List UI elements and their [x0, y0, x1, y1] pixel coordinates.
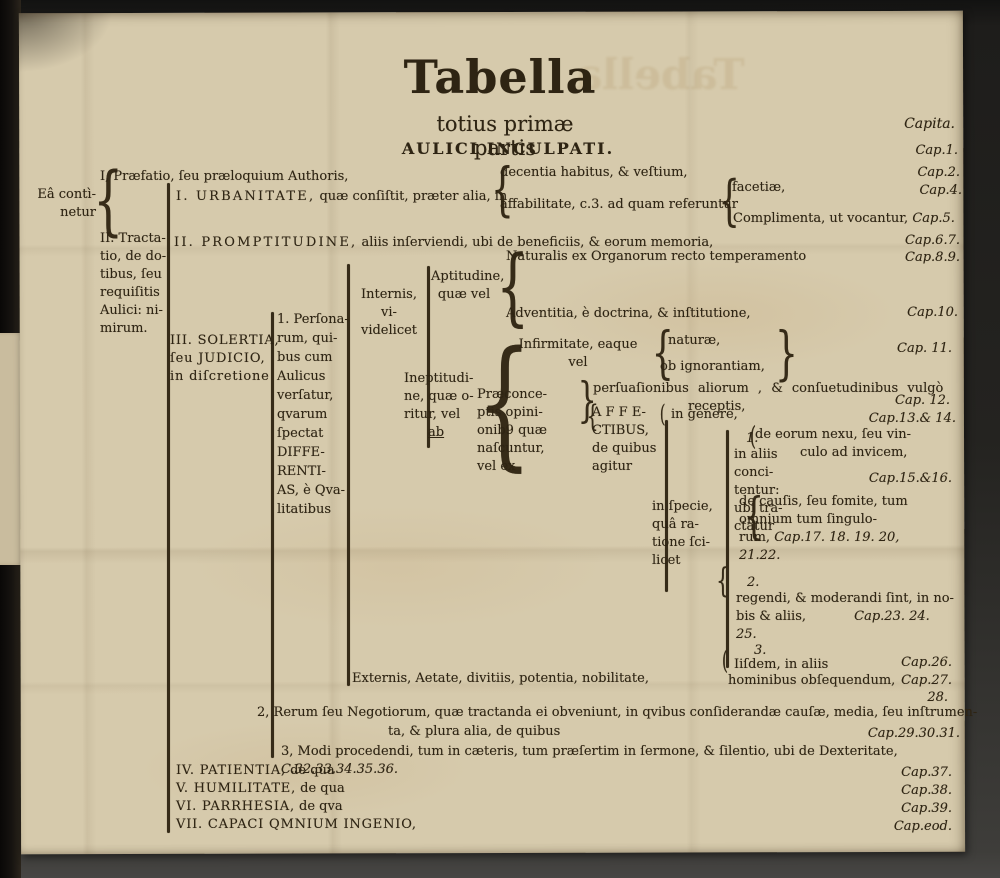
node-de-eorum-line2: culo ad invicem,: [800, 444, 907, 462]
node-tractatio: II. Tracta- tio, de do- tibus, ſeu requi…: [100, 230, 170, 338]
node-solertia: III. SOLERTIA, ſeu JUDICIO, in diſcretio…: [170, 332, 279, 386]
node-decentia: decentia habitus, & veſtium,: [500, 164, 688, 182]
cap-ref-eod: Cap.eod.: [894, 818, 952, 836]
node-adventitia: Adventitia, è doctrina, & inſtitutione,: [506, 305, 751, 323]
scanned-page: Tabella Tabella totius primæ partis AULI…: [0, 0, 1000, 878]
node-humilitate-term: V. HUMILITATE,: [176, 781, 296, 796]
cap-ref-27: Cap.27.: [901, 672, 952, 690]
node-parrhesia-term: VI. PARRHESIA,: [176, 799, 295, 814]
cap-ref-29-31: Cap.29.30.31.: [868, 725, 960, 743]
node-externis: Externis, Aetate, divitiis, potentia, no…: [352, 670, 649, 688]
node-urbanitate-rest: quæ conſiſtit, præter alia, in: [315, 189, 507, 204]
node-persuasionibus: perſuaſionibus aliorum , & conſuetudinib…: [593, 380, 943, 398]
cap-ref-8-9: Cap.8.9.: [905, 249, 960, 267]
cap-ref-38: Cap.38.: [901, 782, 952, 800]
node-in-specie: in ſpecie, quâ ra- tione ſci- licet: [652, 498, 722, 570]
node-urbanitate: I. URBANITATE, quæ conſiſtit, præter ali…: [176, 188, 507, 206]
node-humilitate: V. HUMILITATE, de qua: [176, 780, 345, 798]
node-rerum-line1: 2, Rerum ſeu Negotiorum, quæ tractanda e…: [257, 704, 977, 722]
cap-ref-5: Cap.5.: [912, 211, 955, 226]
node-aptitudine: Aptitudine, quæ vel: [431, 268, 497, 304]
node-ab: ab: [428, 424, 444, 442]
node-internis: Internis, vi- videlicet: [352, 286, 426, 340]
node-de-causis: de cauſis, ſeu fomite, tum omnium tum ſi…: [739, 493, 959, 565]
node-in-genere: in genere,: [671, 406, 738, 424]
node-naturalis: Naturalis ex Organorum recto temperament…: [506, 248, 806, 266]
showthrough-title-ghost: Tabella: [575, 50, 745, 99]
node-rerum-line2: ta, & plura alia, de quibus: [388, 723, 560, 741]
cap-ref-10: Cap.10.: [907, 304, 958, 322]
node-affectibus: A F F E- CTIBUS, de quibus agitur: [592, 404, 666, 476]
node-complimenta-text: Complimenta, ut vocantur,: [733, 211, 912, 226]
node-ea-continetur: Eâ contì- netur: [22, 186, 96, 222]
page-heading: AULICI INCULPATI.: [398, 139, 618, 158]
node-urbanitate-term: I. URBANITATE,: [176, 189, 315, 204]
node-praeconceptis: Præconce- ptis opini- onib9 quæ naſcuntu…: [477, 386, 551, 476]
node-promptitudine-term: II. PROMPTITUDINE,: [174, 235, 357, 250]
node-ineptitudine: Ineptitudi- ne, quæ o- ritur, vel: [404, 370, 474, 424]
node-modi-text: 3, Modi procedendi, tum in cæteris, tum …: [281, 744, 898, 759]
cap-ref-1: Cap.1.: [915, 142, 958, 160]
capita-column-header: Capita.: [904, 115, 955, 133]
node-patientia-rest: de qua: [286, 763, 335, 778]
brace-rule-numbered-items: [726, 430, 729, 668]
node-personarum: 1. Perſona- rum, qui- bus cum Aulicus ve…: [277, 310, 353, 519]
node-capaci-term: VII. CAPACI QMNIUM INGENIO,: [176, 817, 417, 832]
node-facetiae: facetiæ,: [732, 179, 785, 197]
node-naturae: naturæ,: [668, 332, 720, 350]
node-de-eorum-line1: de eorum nexu, ſeu vin-: [755, 426, 911, 444]
node-complimenta: Complimenta, ut vocantur, Cap.5.: [733, 210, 955, 228]
node-parrhesia: VI. PARRHESIA, de qva: [176, 798, 343, 816]
page-title: Tabella: [400, 52, 600, 102]
cap-ref-15-16: Cap.15.&16.: [869, 470, 952, 488]
node-regendi: regendi, & moderandi ſint, in no- bis & …: [736, 590, 954, 644]
cap-ref-6-7: Cap.6.7.: [905, 232, 960, 250]
node-infirmitate: Infirmitate, eaque vel: [512, 336, 644, 372]
cap-ref-4: Cap.4.: [919, 182, 962, 200]
cap-ref-26: Cap.26.: [901, 654, 952, 672]
node-modi: 3, Modi procedendi, tum in cæteris, tum …: [281, 743, 1000, 779]
node-humilitate-rest: de qua: [296, 781, 345, 796]
cap-ref-2: Cap.2.: [917, 164, 960, 182]
cap-ref-39: Cap.39.: [901, 800, 952, 818]
node-patientia-term: IV. PATIENTIA,: [176, 763, 286, 778]
node-ob-ignorantiam: ob ignorantiam,: [660, 358, 765, 376]
node-praefatio: I, Præfatio, ſeu præloquium Authoris,: [100, 168, 348, 186]
node-parrhesia-rest: de qva: [295, 799, 343, 814]
cap-ref-11: Cap. 11.: [897, 340, 952, 358]
node-affabilitate: affabilitate, c.3. ad quam referuntur: [500, 196, 738, 214]
brace-naturae-close: }: [775, 324, 798, 382]
node-hominibus: hominibus obſequendum,: [728, 672, 895, 690]
node-patientia: IV. PATIENTIA, de qua: [176, 762, 335, 780]
node-capaci: VII. CAPACI QMNIUM INGENIO,: [176, 816, 417, 834]
paren-item-3: (: [722, 648, 728, 674]
